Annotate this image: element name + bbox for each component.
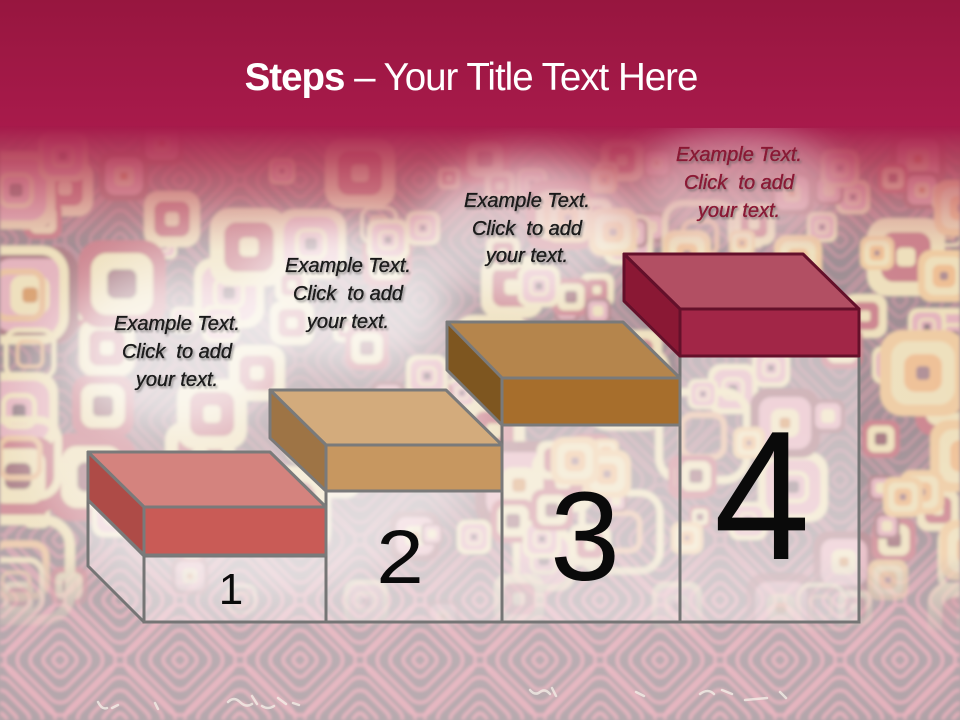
- svg-text:Example Text.: Example Text.: [285, 255, 411, 277]
- svg-text:your text.: your text.: [696, 200, 780, 222]
- svg-text:Example Text.: Example Text.: [676, 144, 802, 166]
- svg-text:your text.: your text.: [305, 311, 389, 333]
- svg-text:Click to add: Click to add: [293, 283, 404, 305]
- svg-text:your text.: your text.: [484, 245, 568, 267]
- svg-text:Example Text.: Example Text.: [114, 313, 240, 335]
- svg-text:Example Text.: Example Text.: [464, 190, 590, 212]
- svg-text:4: 4: [714, 392, 810, 598]
- svg-text:1: 1: [219, 565, 243, 614]
- svg-text:Click to add: Click to add: [472, 218, 583, 240]
- svg-text:Click to add: Click to add: [684, 172, 795, 194]
- svg-text:3: 3: [550, 466, 620, 607]
- svg-text:your text.: your text.: [134, 369, 218, 391]
- svg-text:2: 2: [376, 515, 423, 600]
- svg-text:Click to add: Click to add: [122, 341, 233, 363]
- svg-text:Steps – Your Title Text Here: Steps – Your Title Text Here: [245, 56, 698, 99]
